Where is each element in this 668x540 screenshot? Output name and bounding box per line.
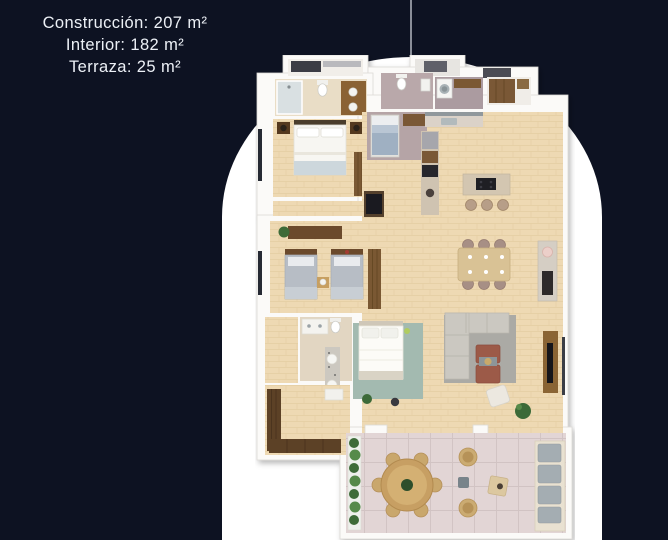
floor-plan: [255, 55, 575, 540]
pantry: [487, 77, 531, 105]
guest-bathroom: [381, 73, 433, 109]
hall-left: [273, 201, 368, 216]
terrace-sofa: [535, 441, 565, 531]
twin-bedroom: [258, 221, 382, 313]
laundry: [435, 77, 483, 109]
area-stats: Construcción: 207 m² Interior: 182 m² Te…: [0, 12, 250, 78]
divider-line: [410, 0, 412, 59]
scene: Construcción: 207 m² Interior: 182 m² Te…: [0, 0, 668, 540]
terrace: [346, 433, 566, 533]
bedroom-3: [353, 321, 423, 406]
closet-top: [288, 59, 363, 76]
stat-terraza: Terraza: 25 m²: [0, 56, 250, 78]
bathroom-3: [300, 317, 352, 390]
bar-counter: [538, 241, 557, 301]
master-bedroom: [258, 119, 368, 197]
dining-area: [458, 240, 510, 290]
stat-interior: Interior: 182 m²: [0, 34, 250, 56]
stat-construccion: Construcción: 207 m²: [0, 12, 250, 34]
master-bathroom: [275, 79, 367, 116]
